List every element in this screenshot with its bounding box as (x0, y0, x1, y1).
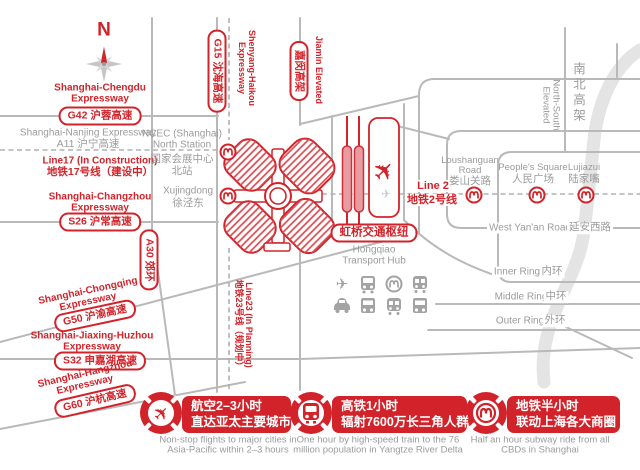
hsr-title-badge: 高铁1小时 辐射7600万长三角人群 (332, 396, 467, 433)
middle-ring-zh: 中环 (544, 291, 569, 303)
line17-label-zh: 地铁17号线（建设中） (47, 167, 153, 179)
ns-elevated-line1: North-South (550, 79, 560, 130)
compass-icon (86, 46, 122, 82)
metro-title-badge: 地铁半小时 联动上海各大商圈 (507, 396, 620, 433)
hub-name-en2: Transport Hub (342, 256, 406, 267)
flight-title-line1: 航空2–3小时 (191, 398, 283, 414)
xujingdong-station-en: Xujingdong (163, 186, 213, 197)
nanjing-expwy-zh: A11 沪宁高速 (57, 139, 120, 151)
station-icon-ncec (221, 145, 236, 160)
hub-badge: 虹桥交通枢纽 (331, 224, 418, 243)
coach-icon (413, 298, 427, 313)
peoples-square-en: People's Square (498, 163, 567, 173)
yanan-road-zh: 延安西路 (567, 222, 613, 234)
metro-title-line1: 地铁半小时 (516, 398, 612, 414)
g42-badge: G42 沪蓉高速 (59, 107, 142, 126)
flight-caption: Non-stop flights to major cities in Asia… (159, 436, 296, 457)
station-icon-peoples-square (530, 188, 545, 203)
flight-title-badge: 航空2–3小时 直达亚太主要城市 (182, 396, 291, 433)
metro-title-line2: 联动上海各大商圈 (516, 414, 612, 430)
shenhai-line2: Expressway (236, 30, 246, 106)
nanjing-expwy-name: Shanghai-Nanjing Expressway (20, 128, 156, 139)
railcar-icon (387, 298, 401, 315)
middle-ring-en: Middle Ring (493, 292, 550, 303)
s26-badge: S26 沪常高速 (59, 213, 141, 232)
lujiazui-en: Lujiazui (568, 163, 600, 173)
station-icon-loushanguan (467, 188, 482, 203)
shenhai-expwy-name: Shenyang-Haikou Expressway (236, 30, 256, 106)
ncec-station-zh: 国家会展中心 (151, 154, 214, 166)
maglev-icon (413, 276, 427, 293)
jiaxing-expwy-name: Shanghai-Jiaxing-Huzhou (31, 331, 154, 342)
line2-label-en: Line 2 (415, 180, 451, 192)
metro-caption-line2: CBDs in Shanghai (471, 446, 610, 456)
line23-label: Line23 (In Planning) 地铁23号线（规划中） (233, 279, 253, 370)
flight-ring-icon: ✈ (140, 392, 182, 434)
ncec-station-en2: North Station (153, 140, 211, 151)
lujiazui-zh: 陆家嘴 (568, 174, 600, 186)
inner-ring-en: Inner Ring (492, 267, 542, 278)
station-icon-xujingdong (221, 189, 236, 204)
changzhou-expwy-name: Shanghai-Changzhou (49, 192, 152, 203)
hub-name-en: Hongqiao (353, 245, 396, 256)
hongqiao-transport-map: ✈ ✈ ✈ (0, 0, 640, 470)
ns-elevated-zh: 南北高架 (569, 62, 588, 124)
flight-title-line2: 直达亚太主要城市 (191, 414, 283, 430)
jiamin-elevated-name: Jiamin Elevated (313, 36, 323, 104)
outer-ring-zh: 外环 (543, 315, 568, 327)
outer-ring-en: Outer Ring (494, 316, 546, 327)
compass-north-label: N (97, 21, 111, 42)
loushanguan-zh: 娄山关路 (449, 176, 491, 188)
hsr-title-line2: 辐射7600万长三角人群 (341, 414, 459, 430)
line17-label-en: Line17 (In Construction) (43, 156, 158, 167)
line23-en: Line23 (In Planning) (243, 279, 253, 370)
hsr-train-icon (361, 276, 375, 294)
ncec-station-en: NCEC (Shanghai) (142, 129, 222, 140)
hsr-caption: One hour by high-speed train to the 76 m… (293, 436, 463, 457)
hsr-title-line1: 高铁1小时 (341, 398, 459, 414)
a30-badge: A30 郊环 (140, 229, 159, 290)
ns-elevated-en: North-South Elevated (540, 79, 561, 130)
ns-elevated-line2: Elevated (540, 79, 550, 130)
ncec-clover-building (219, 133, 340, 259)
ncec-station-zh2: 北站 (172, 166, 193, 178)
flight-caption-line2: Asia-Pacific within 2–3 hours (159, 446, 296, 456)
jiamin-badge: 嘉闵高架 (290, 41, 309, 101)
peoples-square-zh: 人民广场 (512, 174, 554, 186)
metro-ring-icon (465, 392, 507, 434)
hub-transport-icons: ✈ (334, 276, 427, 315)
metro-logo-icon (387, 277, 402, 292)
inner-ring-zh: 内环 (540, 266, 565, 278)
plane-icon: ✈ (336, 276, 349, 293)
shenhai-line1: Shenyang-Haikou (246, 30, 256, 106)
hsr-ring-icon (290, 392, 332, 434)
metro-caption: Half an hour subway ride from all CBDs i… (471, 436, 610, 457)
yanan-road-en: West Yan'an Road (487, 223, 573, 234)
hsr-caption-line2: million population in Yangtze River Delt… (293, 446, 463, 456)
bus-icon (361, 298, 375, 313)
chengdu-expwy-name2: Expressway (71, 94, 129, 105)
railway-tracks (343, 116, 364, 224)
line2-label-zh: 地铁2号线 (405, 194, 459, 206)
line23-zh: 地铁23号线（规划中） (233, 279, 243, 370)
g15-badge: G15 沈海高速 (208, 30, 227, 113)
airport-terminal: ✈ ✈ (366, 118, 403, 217)
taxi-icon (334, 298, 350, 313)
xujingdong-station-zh: 徐泾东 (172, 198, 204, 210)
chengdu-expwy-name: Shanghai-Chengdu (54, 83, 146, 94)
station-icon-lujiazui (579, 188, 594, 203)
airplane-shadow-icon: ✈ (381, 187, 391, 201)
